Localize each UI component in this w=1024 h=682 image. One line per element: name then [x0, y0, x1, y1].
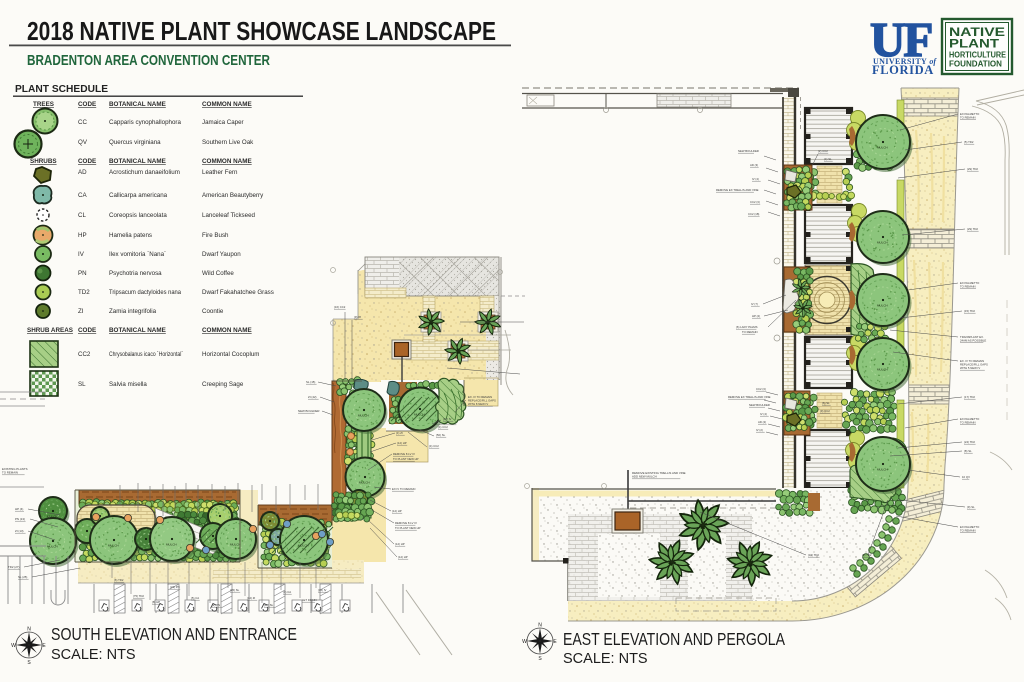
svg-text:MULCH: MULCH — [877, 241, 888, 245]
svg-text:Psychotria nervosa: Psychotria nervosa — [109, 270, 162, 277]
svg-text:IV (2): IV (2) — [756, 428, 763, 432]
svg-text:TO REMAIN: TO REMAIN — [742, 330, 758, 334]
svg-text:HORTICULTURE: HORTICULTURE — [949, 51, 1006, 60]
svg-text:(75) TD2: (75) TD2 — [133, 594, 144, 598]
svg-text:AD (3): AD (3) — [750, 163, 758, 167]
svg-text:(10) IV: (10) IV — [318, 588, 327, 592]
svg-text:(6) TD2: (6) TD2 — [114, 578, 124, 582]
svg-text:(9) CC2: (9) CC2 — [820, 409, 830, 413]
svg-text:(4) CC2: (4) CC2 — [438, 425, 448, 429]
svg-text:CC2 (3): CC2 (3) — [756, 387, 766, 391]
svg-text:(24) TD2: (24) TD2 — [964, 440, 975, 444]
svg-text:American Beautyberry: American Beautyberry — [202, 192, 264, 199]
svg-text:10 QV: 10 QV — [962, 475, 970, 479]
svg-text:MULCH: MULCH — [359, 481, 370, 485]
svg-text:Coreopsis lanceolata: Coreopsis lanceolata — [109, 212, 167, 219]
svg-text:NEW BOULDER: NEW BOULDER — [738, 149, 759, 153]
svg-text:TD2 (27): TD2 (27) — [8, 565, 19, 569]
svg-text:(2) PN: (2) PN — [212, 603, 220, 607]
svg-text:ZI (13): ZI (13) — [15, 529, 24, 533]
svg-text:(15) TD2: (15) TD2 — [964, 309, 975, 313]
svg-text:TO REMAIN: TO REMAIN — [2, 471, 18, 475]
svg-text:(5) TD2: (5) TD2 — [964, 140, 974, 144]
svg-text:TO PLANT NEW HP: TO PLANT NEW HP — [395, 526, 421, 530]
svg-text:QV: QV — [78, 139, 88, 146]
svg-text:SL (25): SL (25) — [18, 575, 27, 579]
svg-text:SCALE: NTS: SCALE: NTS — [563, 651, 648, 667]
svg-text:CC2 (18): CC2 (18) — [748, 212, 759, 216]
svg-text:NEW BOULDER: NEW BOULDER — [749, 403, 770, 407]
svg-text:TO PLANT NEW HP: TO PLANT NEW HP — [393, 457, 419, 461]
svg-text:IV (4): IV (4) — [760, 412, 767, 416]
svg-text:Ilex vomitoria `Nana`: Ilex vomitoria `Nana` — [109, 251, 166, 258]
svg-text:(29) TD2: (29) TD2 — [967, 227, 978, 231]
svg-text:MULCH: MULCH — [877, 368, 888, 372]
svg-text:(34) TD2: (34) TD2 — [808, 553, 819, 557]
svg-text:SOUTH ELEVATION AND ENTRANCE: SOUTH ELEVATION AND ENTRANCE — [51, 624, 297, 644]
svg-text:MULCH: MULCH — [358, 414, 369, 418]
svg-text:MULCH: MULCH — [877, 468, 888, 472]
svg-text:IV: IV — [78, 251, 85, 258]
svg-text:WITH 8 NEW IV: WITH 8 NEW IV — [468, 402, 488, 406]
svg-text:Quercus virginiana: Quercus virginiana — [109, 139, 161, 146]
svg-text:IV (7): IV (7) — [751, 302, 758, 306]
svg-text:24AM AS POSSIBLE: 24AM AS POSSIBLE — [960, 339, 986, 343]
svg-text:FOUNDATION: FOUNDATION — [949, 60, 1002, 69]
svg-text:REMOVE EX TRELLIS AND VINE: REMOVE EX TRELLIS AND VINE — [728, 395, 771, 399]
svg-text:(12) HP: (12) HP — [395, 542, 405, 546]
svg-text:REMOVE 8 LV IV: REMOVE 8 LV IV — [393, 452, 415, 456]
svg-text:LET DRAIN: LET DRAIN — [302, 598, 317, 602]
svg-text:REMOVE EX TRELLIS AND VINE: REMOVE EX TRELLIS AND VINE — [716, 188, 759, 192]
svg-text:Callicarpa americana: Callicarpa americana — [109, 192, 168, 199]
svg-text:SHRUBS: SHRUBS — [30, 158, 57, 165]
svg-text:EAST ELEVATION AND PERGOLA: EAST ELEVATION AND PERGOLA — [563, 629, 785, 649]
svg-text:(9) TD2: (9) TD2 — [862, 553, 872, 557]
svg-text:BOTANICAL NAME: BOTANICAL NAME — [109, 158, 166, 165]
svg-text:Capparis cynophallophora: Capparis cynophallophora — [109, 119, 181, 126]
svg-text:2018 NATIVE PLANT SHOWCASE LAN: 2018 NATIVE PLANT SHOWCASE LANDSCAPE — [27, 16, 496, 46]
svg-text:MULCH: MULCH — [298, 544, 309, 548]
svg-text:Salvia misella: Salvia misella — [109, 381, 147, 388]
svg-text:(4) CC2: (4) CC2 — [429, 444, 439, 448]
svg-text:NEW BOULDER: NEW BOULDER — [298, 409, 320, 413]
svg-text:CODE: CODE — [78, 158, 96, 165]
svg-text:(17) TD2: (17) TD2 — [964, 395, 975, 399]
svg-text:(5) CA: (5) CA — [191, 596, 199, 600]
svg-text:MULCH: MULCH — [877, 146, 888, 150]
svg-text:SCALE: NTS: SCALE: NTS — [51, 647, 136, 663]
svg-text:Leather Fern: Leather Fern — [202, 169, 238, 176]
svg-text:(4) ZI: (4) ZI — [396, 431, 403, 435]
svg-text:Chrysobalanus icaco `Horizonta: Chrysobalanus icaco `Horizontal` — [109, 351, 183, 358]
svg-text:COMMON NAME: COMMON NAME — [202, 327, 252, 334]
svg-text:TD2: TD2 — [78, 289, 90, 296]
svg-text:Zamia integrifolia: Zamia integrifolia — [109, 308, 157, 315]
svg-text:(8) SL: (8) SL — [964, 449, 972, 453]
svg-text:Wild Coffee: Wild Coffee — [202, 270, 234, 277]
svg-text:PN: PN — [78, 270, 87, 277]
svg-text:AD (2): AD (2) — [758, 420, 766, 424]
svg-text:MULCH: MULCH — [108, 544, 119, 548]
svg-text:TO REMAIN: TO REMAIN — [960, 529, 976, 533]
svg-text:CC2: CC2 — [78, 351, 91, 358]
svg-text:TO REMAIN: TO REMAIN — [960, 116, 976, 120]
svg-text:Horizontal Cocoplum: Horizontal Cocoplum — [202, 351, 259, 358]
svg-text:(9) IV: (9) IV — [354, 315, 361, 319]
svg-text:ADD NEW MULCH: ADD NEW MULCH — [632, 475, 657, 479]
svg-text:HP (4): HP (4) — [15, 507, 23, 511]
svg-text:(8) HP: (8) HP — [152, 600, 160, 604]
svg-text:CODE: CODE — [78, 327, 96, 334]
svg-text:CC: CC — [78, 119, 87, 126]
svg-text:EX IV TO REMAIN: EX IV TO REMAIN — [392, 487, 415, 491]
svg-text:(4) SL: (4) SL — [824, 157, 832, 161]
svg-text:MULCH: MULCH — [47, 545, 58, 549]
svg-text:(6) SL: (6) SL — [822, 401, 830, 405]
svg-text:HP (4): HP (4) — [752, 314, 760, 318]
svg-text:(16) IV: (16) IV — [443, 417, 452, 421]
svg-text:MULCH: MULCH — [877, 304, 888, 308]
svg-text:CC2 (3): CC2 (3) — [750, 200, 760, 204]
svg-text:FLORIDA: FLORIDA — [872, 63, 934, 77]
svg-text:HP: HP — [78, 232, 87, 239]
svg-text:(18) SL: (18) SL — [264, 603, 274, 607]
svg-text:Acrostichum danaeifolium: Acrostichum danaeifolium — [109, 169, 180, 176]
svg-text:BOTANICAL NAME: BOTANICAL NAME — [109, 327, 166, 334]
svg-text:TO REMAIN: TO REMAIN — [960, 285, 976, 289]
svg-text:MULCH: MULCH — [166, 543, 177, 547]
svg-text:ZI (42): ZI (42) — [308, 395, 317, 399]
svg-text:(6) LADY PALMS: (6) LADY PALMS — [736, 325, 758, 329]
svg-text:(12) HP: (12) HP — [398, 555, 408, 559]
svg-text:Dwarf Yaupon: Dwarf Yaupon — [202, 251, 241, 258]
svg-text:COMMON NAME: COMMON NAME — [202, 158, 252, 165]
svg-text:CA: CA — [78, 192, 87, 199]
svg-text:(9) SL: (9) SL — [967, 505, 975, 509]
svg-text:PN (13): PN (13) — [15, 517, 25, 521]
svg-text:BRADENTON AREA CONVENTION CENT: BRADENTON AREA CONVENTION CENTER — [27, 52, 270, 69]
svg-text:SL (15): SL (15) — [306, 380, 315, 384]
svg-text:Dwarf Fakahatchee Grass: Dwarf Fakahatchee Grass — [202, 289, 274, 296]
svg-text:(23) PN: (23) PN — [170, 585, 180, 589]
svg-text:Fire Bush: Fire Bush — [202, 232, 229, 239]
svg-text:Southern Live Oak: Southern Live Oak — [202, 139, 254, 146]
svg-text:(45) SL: (45) SL — [230, 588, 240, 592]
svg-text:IV (4): IV (4) — [752, 177, 759, 181]
svg-text:(50) SL: (50) SL — [436, 433, 446, 437]
svg-text:PLANT SCHEDULE: PLANT SCHEDULE — [15, 83, 108, 95]
svg-text:Creeping Sage: Creeping Sage — [202, 381, 244, 388]
svg-text:WITH 5 NEW IV: WITH 5 NEW IV — [960, 366, 980, 370]
svg-text:(12) HP: (12) HP — [397, 441, 407, 445]
svg-text:(16) CC2: (16) CC2 — [334, 305, 346, 309]
svg-text:PLANT: PLANT — [949, 37, 1000, 51]
svg-text:(12) ZI: (12) ZI — [247, 596, 255, 600]
svg-text:ZI: ZI — [78, 308, 84, 315]
svg-text:MULCH: MULCH — [230, 543, 241, 547]
svg-text:Tripsacum dactyloides nana: Tripsacum dactyloides nana — [109, 289, 182, 296]
svg-text:TO REMAIN: TO REMAIN — [960, 421, 976, 425]
svg-text:Lanceleaf Tickseed: Lanceleaf Tickseed — [202, 212, 256, 219]
svg-text:REMOVE 8 LV IV: REMOVE 8 LV IV — [395, 521, 417, 525]
svg-text:TREES: TREES — [33, 101, 54, 108]
svg-text:Hamelia patens: Hamelia patens — [109, 232, 152, 239]
svg-text:CL: CL — [78, 212, 86, 219]
svg-text:COMMON NAME: COMMON NAME — [202, 101, 252, 108]
svg-text:AD: AD — [78, 169, 87, 176]
svg-text:BOTANICAL NAME: BOTANICAL NAME — [109, 101, 166, 108]
svg-text:(12) HP: (12) HP — [392, 509, 402, 513]
svg-text:(2) CC2: (2) CC2 — [818, 149, 828, 153]
svg-text:SL: SL — [78, 381, 86, 388]
svg-text:Coontie: Coontie — [202, 308, 224, 315]
svg-text:Jamaica Caper: Jamaica Caper — [202, 119, 244, 126]
svg-text:SHRUB AREAS: SHRUB AREAS — [27, 327, 73, 334]
svg-text:(4) CA: (4) CA — [283, 590, 291, 594]
svg-text:(29) TD2: (29) TD2 — [967, 167, 978, 171]
svg-text:MULCH: MULCH — [414, 413, 425, 417]
svg-text:CODE: CODE — [78, 101, 96, 108]
